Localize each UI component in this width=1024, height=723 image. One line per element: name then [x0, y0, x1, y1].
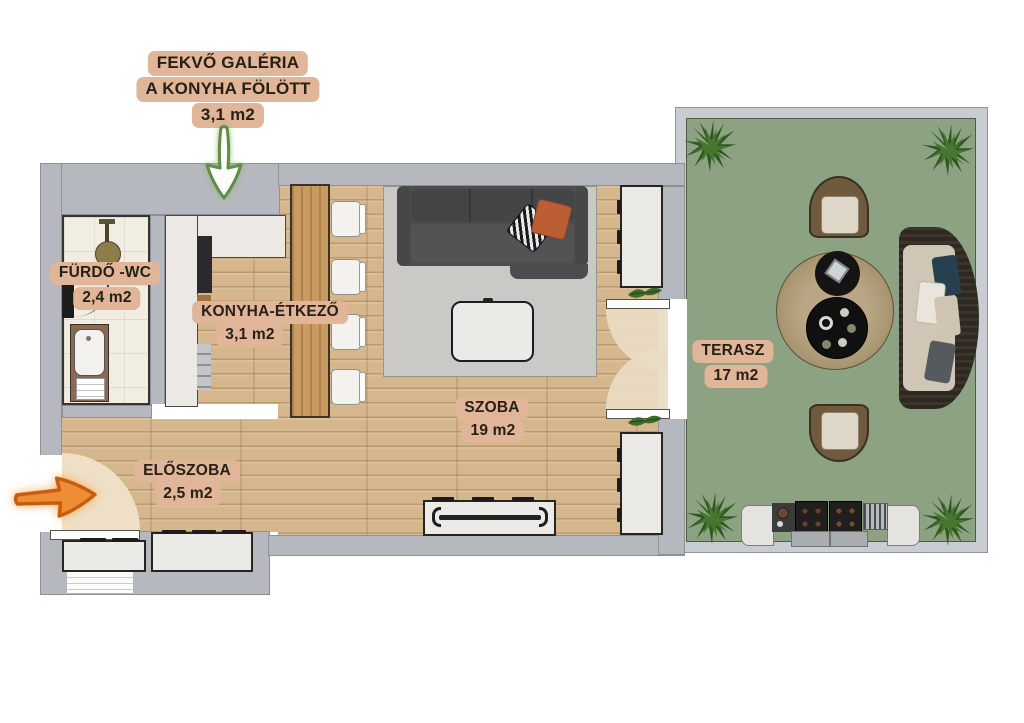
sofa-arm-left [397, 186, 410, 266]
terrace-chair-top [809, 176, 869, 238]
sprig-icon [626, 410, 664, 432]
bench-rail-hook-left [432, 507, 441, 527]
grill-drawers [791, 531, 868, 547]
bath-radiator [76, 378, 105, 400]
grill-plate-left [795, 501, 828, 532]
wall-top-right [278, 163, 685, 186]
side-table-large [806, 297, 868, 359]
floor-plan: FEKVŐ GALÉRIA A KONYHA FÖLÖTT 3,1 m2 FÜR… [0, 0, 1024, 723]
wardrobe-right [151, 532, 253, 572]
plate-4 [822, 340, 831, 349]
sofa-chaise [510, 264, 588, 279]
terrace-chair-bottom-cushion [821, 412, 859, 450]
bench-handle-2 [472, 497, 494, 501]
cabinet-bottom-handle-1 [617, 448, 621, 462]
dishwasher [197, 344, 211, 390]
wall-bath-bottom [62, 405, 152, 418]
room-label-szoba-name: SZOBA [455, 397, 528, 420]
coffee-table [451, 301, 534, 362]
plant-icon [686, 492, 738, 544]
cabinet-bottom-handle-3 [617, 508, 621, 522]
room-label-szoba-area: 19 m2 [462, 420, 525, 443]
grill-knob-small [777, 521, 783, 527]
galeria-note-line1: FEKVŐ GALÉRIA [148, 51, 308, 76]
plate-2 [847, 324, 856, 333]
wardrobe-left-handle-2 [112, 538, 138, 542]
wardrobe-right-handle-2 [192, 530, 216, 534]
bar-stool-4 [331, 369, 361, 405]
galeria-note-line2: A KONYHA FÖLÖTT [136, 77, 319, 102]
shoe-rack [67, 572, 133, 593]
bench-handle-3 [512, 497, 534, 501]
sofa-arm-right [575, 186, 588, 266]
room-label-terasz-area: 17 m2 [705, 365, 768, 388]
room-label-furdo-name: FÜRDŐ -WC [50, 262, 160, 285]
room-label-eloszoba-name: ELŐSZOBA [134, 460, 240, 483]
sprig-icon [626, 282, 664, 304]
cabinet-right-bottom [620, 432, 663, 535]
shower-screen-bar [62, 284, 74, 318]
oven [197, 236, 212, 293]
faucet [86, 336, 91, 341]
arrow-down-icon [196, 124, 252, 204]
cabinet-top-handle-2 [617, 230, 621, 244]
cabinet-top-handle-1 [617, 200, 621, 214]
wardrobe-right-handle-3 [222, 530, 246, 534]
bench-rail [439, 515, 541, 520]
grill-knob [777, 507, 789, 519]
wardrobe-left [62, 540, 146, 572]
plate-3 [838, 338, 847, 347]
coffee-table-handle [483, 298, 493, 302]
grill-side-burner [863, 503, 888, 530]
cabinet-right-top [620, 185, 663, 288]
grill-counter-right [887, 505, 920, 546]
wardrobe-left-handle-1 [80, 538, 106, 542]
wardrobe-right-handle-1 [162, 530, 186, 534]
bench-handle-1 [432, 497, 454, 501]
shower-stem [105, 223, 109, 243]
wall-bath-kitchen-divider [150, 215, 165, 405]
arrow-right-icon [10, 467, 109, 528]
room-label-konyha-name: KONYHA-ÉTKEZŐ [192, 301, 348, 324]
cabinet-bottom-handle-2 [617, 478, 621, 492]
bar-stool-1 [331, 201, 361, 237]
room-label-furdo-area: 2,4 m2 [73, 287, 140, 310]
plant-icon [922, 124, 974, 176]
room-label-terasz-name: TERASZ [692, 340, 773, 363]
room-label-eloszoba-area: 2,5 m2 [154, 483, 221, 506]
grill-counter-left [741, 505, 774, 546]
terrace-chair-top-cushion [821, 196, 859, 234]
plant-icon [922, 494, 974, 546]
plate-1 [840, 308, 849, 317]
wall-left [40, 163, 62, 457]
grill-plate-right [829, 501, 862, 532]
room-label-konyha-area: 3,1 m2 [216, 324, 283, 347]
beige-pillow [934, 295, 961, 337]
plant-icon [684, 120, 736, 172]
bar-stool-2 [331, 259, 361, 295]
teapot [819, 316, 833, 330]
cabinet-top-handle-3 [617, 260, 621, 274]
wall-bottom-main [268, 535, 685, 556]
